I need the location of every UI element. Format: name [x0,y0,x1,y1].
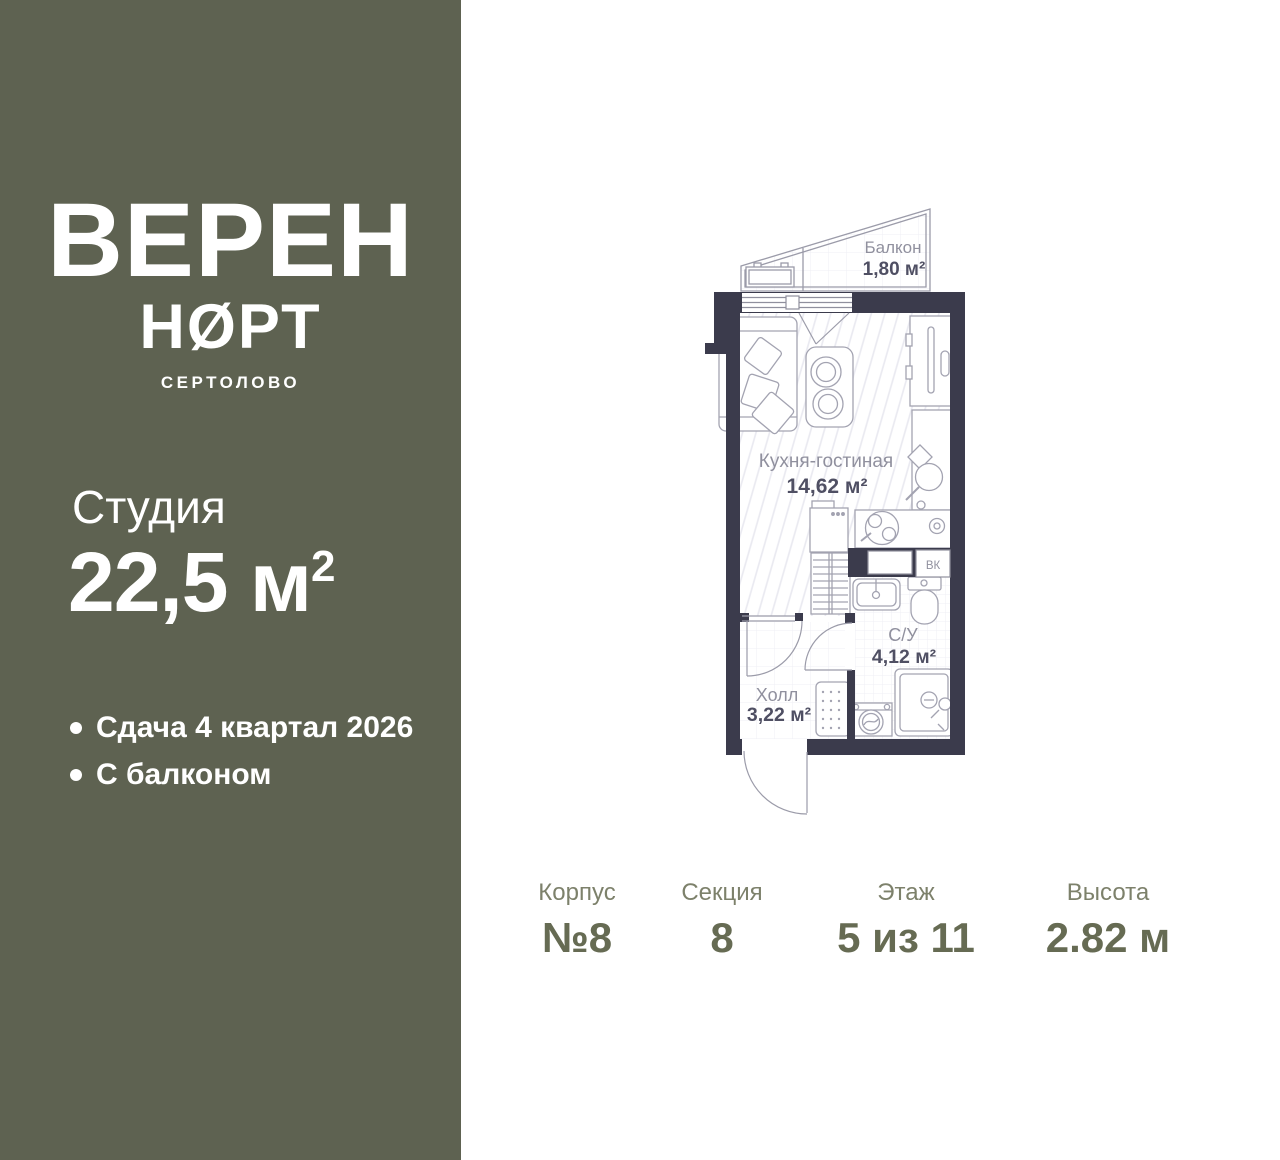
toilet [908,577,941,624]
feature-list: Сдача 4 квартал 2026 С балконом [70,711,413,805]
bathroom-name: С/У [888,625,918,645]
balcony-area: 1,80 м² [863,259,926,280]
sidebar: ВЕРЕН НØРТ СЕРТОЛОВО Студия 22,5 м2 Сдач… [0,0,461,1160]
logo-line-2: НØРТ [0,296,461,359]
detail-building-value: №8 [538,915,615,961]
bathroom-sink [853,579,900,610]
detail-floor-value: 5 из 11 [837,915,975,961]
bullet-dot-icon [70,769,82,781]
unit-type: Студия [72,482,226,533]
wardrobe [906,316,953,406]
floor-plan: Балкон 1,80 м² Кухня-гостиная 14,62 м² С… [680,190,1000,850]
feature-balcony: С балконом [70,758,413,792]
logo-line-1: ВЕРЕН [0,188,461,293]
shelf-ladder [811,553,850,614]
shower [895,669,953,736]
detail-height-value: 2.82 м [1046,915,1170,961]
detail-building: Корпус №8 [538,879,615,961]
hall-name: Холл [756,685,798,705]
floor-plan-svg: Балкон 1,80 м² Кухня-гостиная 14,62 м² С… [680,190,1000,850]
kitchen-name: Кухня-гостиная [759,451,893,472]
kitchen-area: 14,62 м² [787,475,868,498]
hall-wardrobe [816,682,850,736]
detail-section: Секция 8 [681,879,762,961]
bathroom-sliding-door [868,551,912,574]
feature-delivery: Сдача 4 квартал 2026 [70,711,413,745]
bathroom-area: 4,12 м² [872,646,937,668]
detail-section-value: 8 [681,915,762,961]
detail-floor: Этаж 5 из 11 [837,879,975,961]
feature-delivery-label: Сдача 4 квартал 2026 [96,711,413,745]
unit-area-superscript: 2 [311,542,335,591]
unit-area-main: 22,5 м [68,535,311,629]
cabinet [810,501,848,552]
detail-floor-label: Этаж [837,879,975,908]
detail-section-label: Секция [681,879,762,908]
washing-machine [851,703,892,736]
bullet-dot-icon [70,722,82,734]
vk-label: ВК [926,560,941,572]
detail-building-label: Корпус [538,879,615,908]
dining-table [806,347,853,427]
balcony-name: Балкон [864,238,921,257]
detail-height: Высота 2.82 м [1046,879,1170,961]
feature-balcony-label: С балконом [96,758,271,792]
hall-area: 3,22 м² [747,704,812,726]
unit-area: 22,5 м2 [68,536,335,628]
logo-subtitle: СЕРТОЛОВО [0,373,461,393]
detail-height-label: Высота [1046,879,1170,908]
